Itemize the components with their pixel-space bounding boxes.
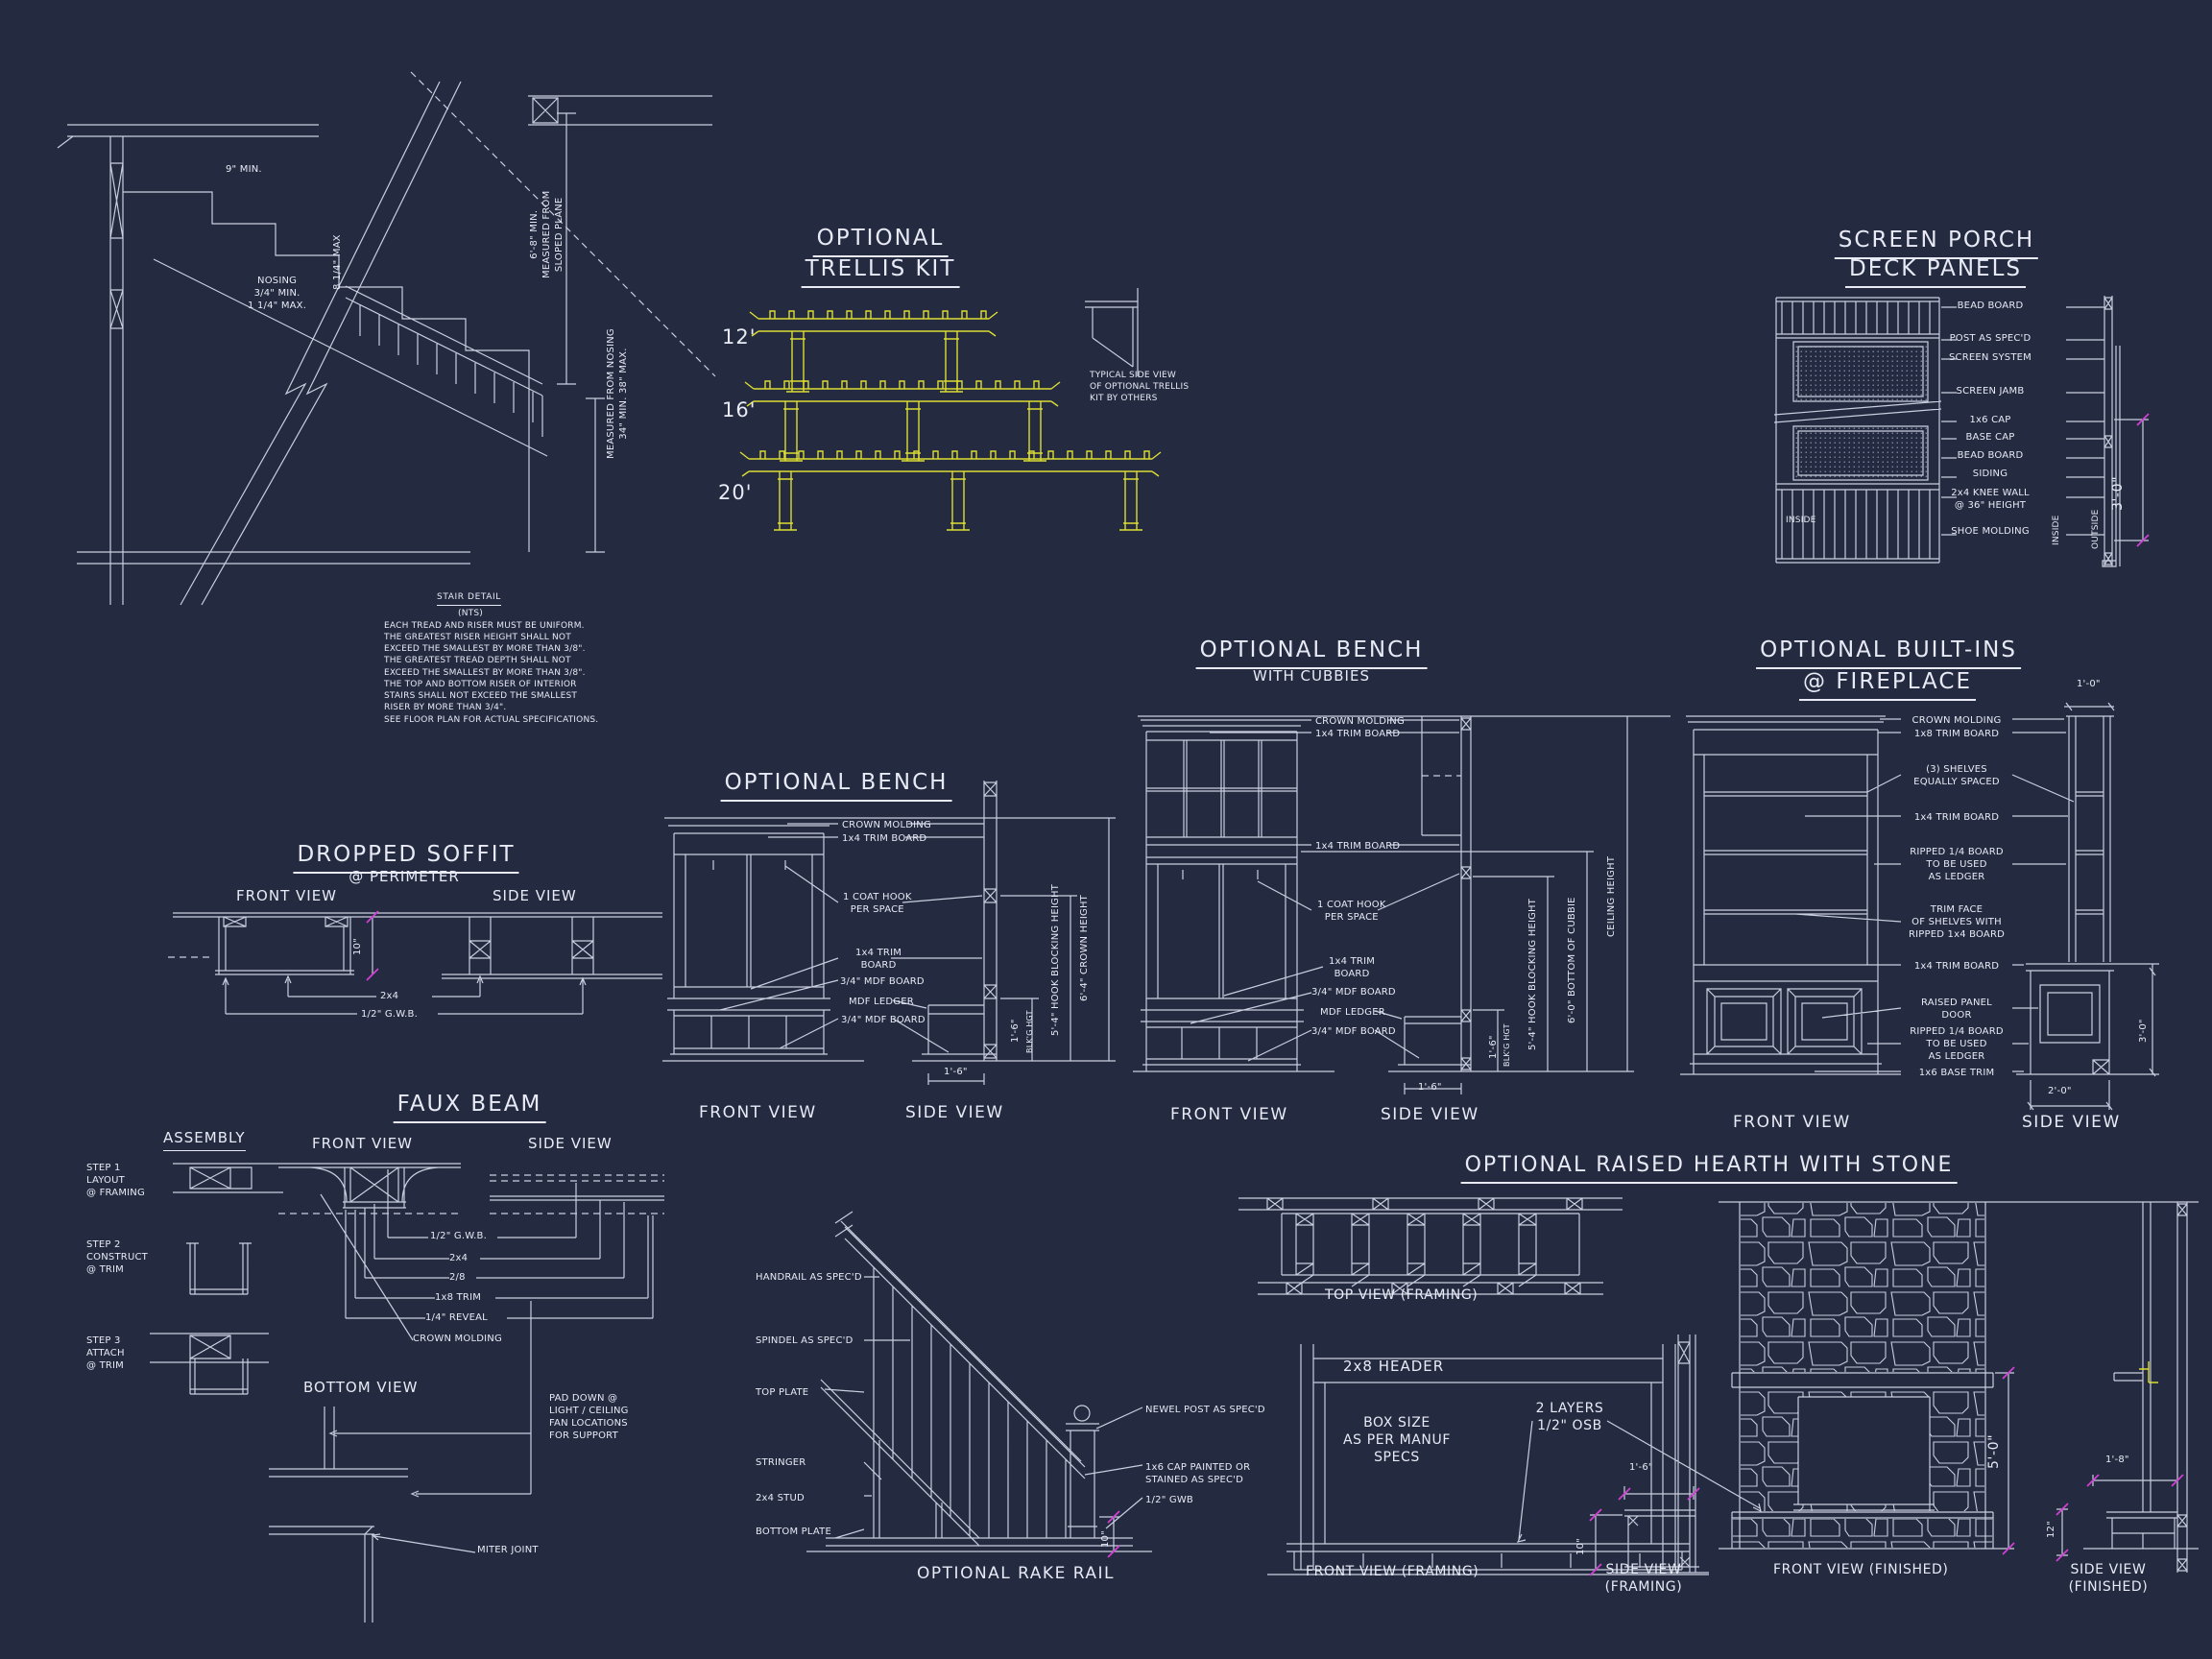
stair-rail-height-dim: MEASURED FROM NOSING 34" MIN. 38" MAX. bbox=[605, 328, 630, 459]
cubbies-dim-ceiling: CEILING HEIGHT bbox=[1605, 856, 1618, 937]
builtins-side-view-label: SIDE VIEW bbox=[2022, 1112, 2121, 1133]
rake-rail-drawing bbox=[730, 1200, 1210, 1603]
stair-tread-dim: 9" MIN. bbox=[226, 163, 262, 176]
faux-beam-title: FAUX BEAM bbox=[394, 1091, 546, 1123]
builtins-label-ripped-1: RIPPED 1/4 BOARD TO BE USED AS LEDGER bbox=[1910, 846, 2004, 883]
hearth-front-finished-label: FRONT VIEW (FINISHED) bbox=[1773, 1561, 1948, 1578]
cubbies-front-view-label: FRONT VIEW bbox=[1170, 1104, 1288, 1125]
screen-label-bead-board-top: BEAD BOARD bbox=[1958, 300, 2024, 312]
trellis-title-1: OPTIONAL bbox=[813, 225, 949, 257]
faux-front-view-label: FRONT VIEW bbox=[312, 1135, 413, 1154]
screen-label-siding: SIDING bbox=[1973, 468, 2008, 480]
soffit-label-2x4: 2x4 bbox=[380, 990, 398, 1002]
stair-notes: EACH TREAD AND RISER MUST BE UNIFORM. TH… bbox=[384, 620, 586, 713]
bench-side-view-label: SIDE VIEW bbox=[905, 1102, 1004, 1123]
screen-label-1x6-cap: 1x6 CAP bbox=[1969, 414, 2010, 426]
faux-miter-label: MITER JOINT bbox=[477, 1544, 539, 1556]
screen-label-shoe-molding: SHOE MOLDING bbox=[1951, 525, 2030, 538]
built-ins-title-1: OPTIONAL BUILT-INS bbox=[1756, 637, 2021, 669]
bench-dim-crown: 6'-4" CROWN HEIGHT bbox=[1078, 895, 1091, 1001]
hearth-dim-bench-height: 10" bbox=[1575, 1538, 1587, 1555]
cubbies-label-mdf-board-1: 3/4" MDF BOARD bbox=[1311, 986, 1396, 998]
faux-step-2: STEP 2 CONSTRUCT @ TRIM bbox=[86, 1238, 148, 1276]
hearth-title: OPTIONAL RAISED HEARTH WITH STONE bbox=[1461, 1152, 1958, 1184]
cubbies-label-crown: CROWN MOLDING bbox=[1315, 715, 1405, 728]
cubbies-label-coat-hook: 1 COAT HOOK PER SPACE bbox=[1317, 899, 1386, 924]
rake-label-stud: 2x4 STUD bbox=[756, 1492, 805, 1504]
stair-nts: (NTS) bbox=[458, 608, 483, 619]
faux-side-view-label: SIDE VIEW bbox=[528, 1135, 613, 1154]
soffit-drawing bbox=[154, 912, 672, 1075]
hearth-dim-hearth: 12" bbox=[2045, 1521, 2057, 1538]
stair-headroom-dim: 6'-8" MIN. MEASURED FROM SLOPED PLANE bbox=[528, 191, 565, 278]
faux-step-1: STEP 1 LAYOUT @ FRAMING bbox=[86, 1162, 145, 1199]
stair-riser-dim: 8 1/4" MAX bbox=[331, 234, 344, 290]
builtins-front-view-label: FRONT VIEW bbox=[1733, 1112, 1851, 1133]
hearth-dim-height: 5'-0" bbox=[1985, 1434, 2003, 1469]
trellis-side-view-bracket bbox=[1085, 288, 1138, 376]
bench-dim-blocking: 1'-6" bbox=[1009, 1019, 1022, 1043]
screen-porch-title-1: SCREEN PORCH bbox=[1835, 227, 2038, 259]
hearth-front-framing-label: FRONT VIEW (FRAMING) bbox=[1306, 1563, 1479, 1580]
trellis-kit-drawing bbox=[710, 288, 1190, 538]
bench-cubbies-title-1: OPTIONAL BENCH bbox=[1196, 637, 1428, 669]
soffit-front-view-label: FRONT VIEW bbox=[236, 887, 337, 906]
bench-label-crown: CROWN MOLDING bbox=[842, 819, 931, 831]
builtins-dim-height: 3'-0" bbox=[2137, 1019, 2150, 1043]
bench-front-view-label: FRONT VIEW bbox=[699, 1102, 817, 1123]
screen-label-post: POST AS SPEC'D bbox=[1950, 332, 2032, 345]
hearth-top-view-label: TOP VIEW (FRAMING) bbox=[1325, 1286, 1478, 1304]
rake-label-stringer: STRINGER bbox=[756, 1456, 805, 1469]
bench-dim-hook: 5'-4" HOOK BLOCKING HEIGHT bbox=[1049, 884, 1062, 1036]
rake-label-gwb: 1/2" GWB bbox=[1145, 1494, 1193, 1506]
bench-label-mdf-board-2: 3/4" MDF BOARD bbox=[841, 1014, 926, 1026]
faux-pad-note: PAD DOWN @ LIGHT / CEILING FAN LOCATIONS… bbox=[549, 1392, 629, 1442]
cubbies-side-view-label: SIDE VIEW bbox=[1381, 1104, 1479, 1125]
bench-title: OPTIONAL BENCH bbox=[721, 769, 952, 802]
cubbies-dim-hook: 5'-4" HOOK BLOCKING HEIGHT bbox=[1527, 899, 1539, 1050]
cubbies-label-mdf-board-2: 3/4" MDF BOARD bbox=[1311, 1025, 1396, 1038]
bench-label-coat-hook: 1 COAT HOOK PER SPACE bbox=[843, 891, 912, 916]
faux-label-2x4: 2x4 bbox=[449, 1252, 468, 1264]
screen-height-dim: 3'-0" bbox=[2109, 476, 2127, 511]
hearth-dim-depth: 1'-8" bbox=[2105, 1454, 2129, 1466]
cubbies-dim-cubbie: 6'-0" BOTTOM OF CUBBIE bbox=[1566, 897, 1578, 1023]
builtins-dim-depth: 2'-0" bbox=[2048, 1085, 2072, 1097]
screen-porch-title-2: DECK PANELS bbox=[1845, 255, 2026, 288]
screen-label-bead-board-bottom: BEAD BOARD bbox=[1958, 449, 2024, 462]
stone-hearth-base bbox=[1733, 1519, 1992, 1548]
faux-label-gwb: 1/2" G.W.B. bbox=[430, 1230, 487, 1242]
trellis-title-2: TRELLIS KIT bbox=[802, 255, 960, 288]
screen-label-screen-system: SCREEN SYSTEM bbox=[1949, 351, 2032, 364]
cubbies-label-mdf-ledger: MDF LEDGER bbox=[1320, 1006, 1385, 1019]
screen-label-knee-wall: 2x4 KNEE WALL @ 36" HEIGHT bbox=[1951, 487, 2030, 512]
cubbies-dim-blocking-sub: BLK'G HGT bbox=[1503, 1023, 1512, 1067]
builtins-label-ripped-2: RIPPED 1/4 BOARD TO BE USED AS LEDGER bbox=[1910, 1025, 2004, 1063]
faux-step-3: STEP 3 ATTACH @ TRIM bbox=[86, 1334, 125, 1372]
cubbies-label-1x4-mid: 1x4 TRIM BOARD bbox=[1315, 840, 1400, 853]
screen-label-screen-jamb: SCREEN JAMB bbox=[1957, 385, 2025, 397]
screen-inside-left-label: INSIDE bbox=[1786, 515, 1816, 526]
stair-detail-title: STAIR DETAIL bbox=[437, 591, 501, 606]
screen-label-base-cap: BASE CAP bbox=[1966, 431, 2015, 444]
blueprint-sheet: 9" MIN. 8 1/4" MAX NOSING 3/4" MIN. 1 1/… bbox=[0, 0, 2212, 1659]
builtins-label-1x4-a: 1x4 TRIM BOARD bbox=[1914, 811, 1999, 824]
hearth-header-label: 2x8 HEADER bbox=[1343, 1358, 1444, 1377]
hearth-dim-bench-depth: 1'-6" bbox=[1629, 1461, 1653, 1474]
soffit-title-2: @ PERIMETER bbox=[349, 868, 460, 887]
faux-bottom-view-label: BOTTOM VIEW bbox=[303, 1379, 418, 1398]
bench-cubbies-drawing bbox=[1133, 701, 1671, 1142]
faux-label-crown: CROWN MOLDING bbox=[413, 1333, 502, 1345]
builtins-dim-top: 1'-0" bbox=[2077, 678, 2101, 690]
screen-mesh-upper bbox=[1794, 343, 1927, 400]
cubbies-label-1x4-board: 1x4 TRIM BOARD bbox=[1329, 955, 1375, 980]
builtins-label-trim-face: TRIM FACE OF SHELVES WITH RIPPED 1x4 BOA… bbox=[1909, 903, 2005, 941]
trellis-size-16: 16' bbox=[722, 397, 757, 423]
trellis-side-note: TYPICAL SIDE VIEW OF OPTIONAL TRELLIS KI… bbox=[1090, 370, 1189, 404]
cubbies-dim-blocking: 1'-6" bbox=[1487, 1035, 1500, 1059]
rake-dim-10: 10" bbox=[1099, 1530, 1112, 1548]
screen-outside-label: OUTSIDE bbox=[2090, 509, 2102, 549]
rake-label-top-plate: TOP PLATE bbox=[756, 1386, 808, 1399]
soffit-dim-10: 10" bbox=[351, 938, 364, 955]
stair-nosing-note: NOSING 3/4" MIN. 1 1/4" MAX. bbox=[248, 275, 306, 312]
bench-dim-blocking-sub: BLK'G HGT bbox=[1025, 1010, 1035, 1053]
built-ins-title-2: @ FIREPLACE bbox=[1799, 668, 1976, 701]
faux-label-reveal: 1/4" REVEAL bbox=[425, 1311, 488, 1324]
trellis-beams bbox=[740, 311, 1161, 530]
builtins-label-base-trim: 1x6 BASE TRIM bbox=[1919, 1067, 1995, 1079]
faux-label-2x8: 2/8 bbox=[449, 1271, 466, 1284]
firebox bbox=[1798, 1397, 1930, 1504]
stair-see-note: SEE FLOOR PLAN FOR ACTUAL SPECIFICATIONS… bbox=[384, 714, 598, 726]
builtins-label-crown: CROWN MOLDING bbox=[1912, 714, 2002, 727]
screen-mesh-lower bbox=[1794, 427, 1927, 479]
builtins-label-shelves: (3) SHELVES EQUALLY SPACED bbox=[1913, 763, 2000, 788]
rake-label-bottom-plate: BOTTOM PLATE bbox=[756, 1526, 831, 1538]
cubbies-dim-depth: 1'-6" bbox=[1418, 1081, 1442, 1094]
faux-beam-assembly-label: ASSEMBLY bbox=[163, 1129, 246, 1151]
trellis-size-20: 20' bbox=[718, 480, 753, 506]
hearth-box-note: BOX SIZE AS PER MANUF SPECS bbox=[1343, 1414, 1451, 1467]
bench-dim-depth: 1'-6" bbox=[944, 1066, 968, 1078]
rake-label-spindel: SPINDEL AS SPEC'D bbox=[756, 1334, 853, 1347]
cubbies-label-1x4-top: 1x4 TRIM BOARD bbox=[1315, 728, 1400, 740]
hearth-osb-note: 2 LAYERS 1/2" OSB bbox=[1536, 1400, 1604, 1434]
bench-cubbies-title-2: WITH CUBBIES bbox=[1253, 667, 1370, 686]
builtins-label-1x8: 1x8 TRIM BOARD bbox=[1914, 728, 1999, 740]
faux-label-1x8-trim: 1x8 TRIM bbox=[435, 1291, 481, 1304]
builtins-label-1x4-b: 1x4 TRIM BOARD bbox=[1914, 960, 1999, 973]
bench-label-1x4-board: 1x4 TRIM BOARD bbox=[855, 947, 902, 972]
builtins-label-raised-panel: RAISED PANEL DOOR bbox=[1921, 997, 1992, 1022]
soffit-side-view-label: SIDE VIEW bbox=[493, 887, 577, 906]
bench-label-mdf-board-1: 3/4" MDF BOARD bbox=[840, 975, 925, 988]
hearth-side-framing-label: SIDE VIEW (FRAMING) bbox=[1605, 1561, 1683, 1596]
trellis-size-12: 12' bbox=[722, 325, 757, 350]
stone-veneer-upper bbox=[1741, 1203, 1984, 1372]
soffit-label-gwb: 1/2" G.W.B. bbox=[361, 1008, 418, 1021]
screen-inside-right-label: INSIDE bbox=[2051, 515, 2062, 545]
hearth-side-finished-label: SIDE VIEW (FINISHED) bbox=[2069, 1561, 2149, 1596]
rake-label-handrail: HANDRAIL AS SPEC'D bbox=[756, 1271, 862, 1284]
bench-label-mdf-ledger: MDF LEDGER bbox=[849, 996, 914, 1008]
bench-label-1x4-trim: 1x4 TRIM BOARD bbox=[842, 832, 926, 845]
rake-rail-title: OPTIONAL RAKE RAIL bbox=[917, 1563, 1115, 1584]
